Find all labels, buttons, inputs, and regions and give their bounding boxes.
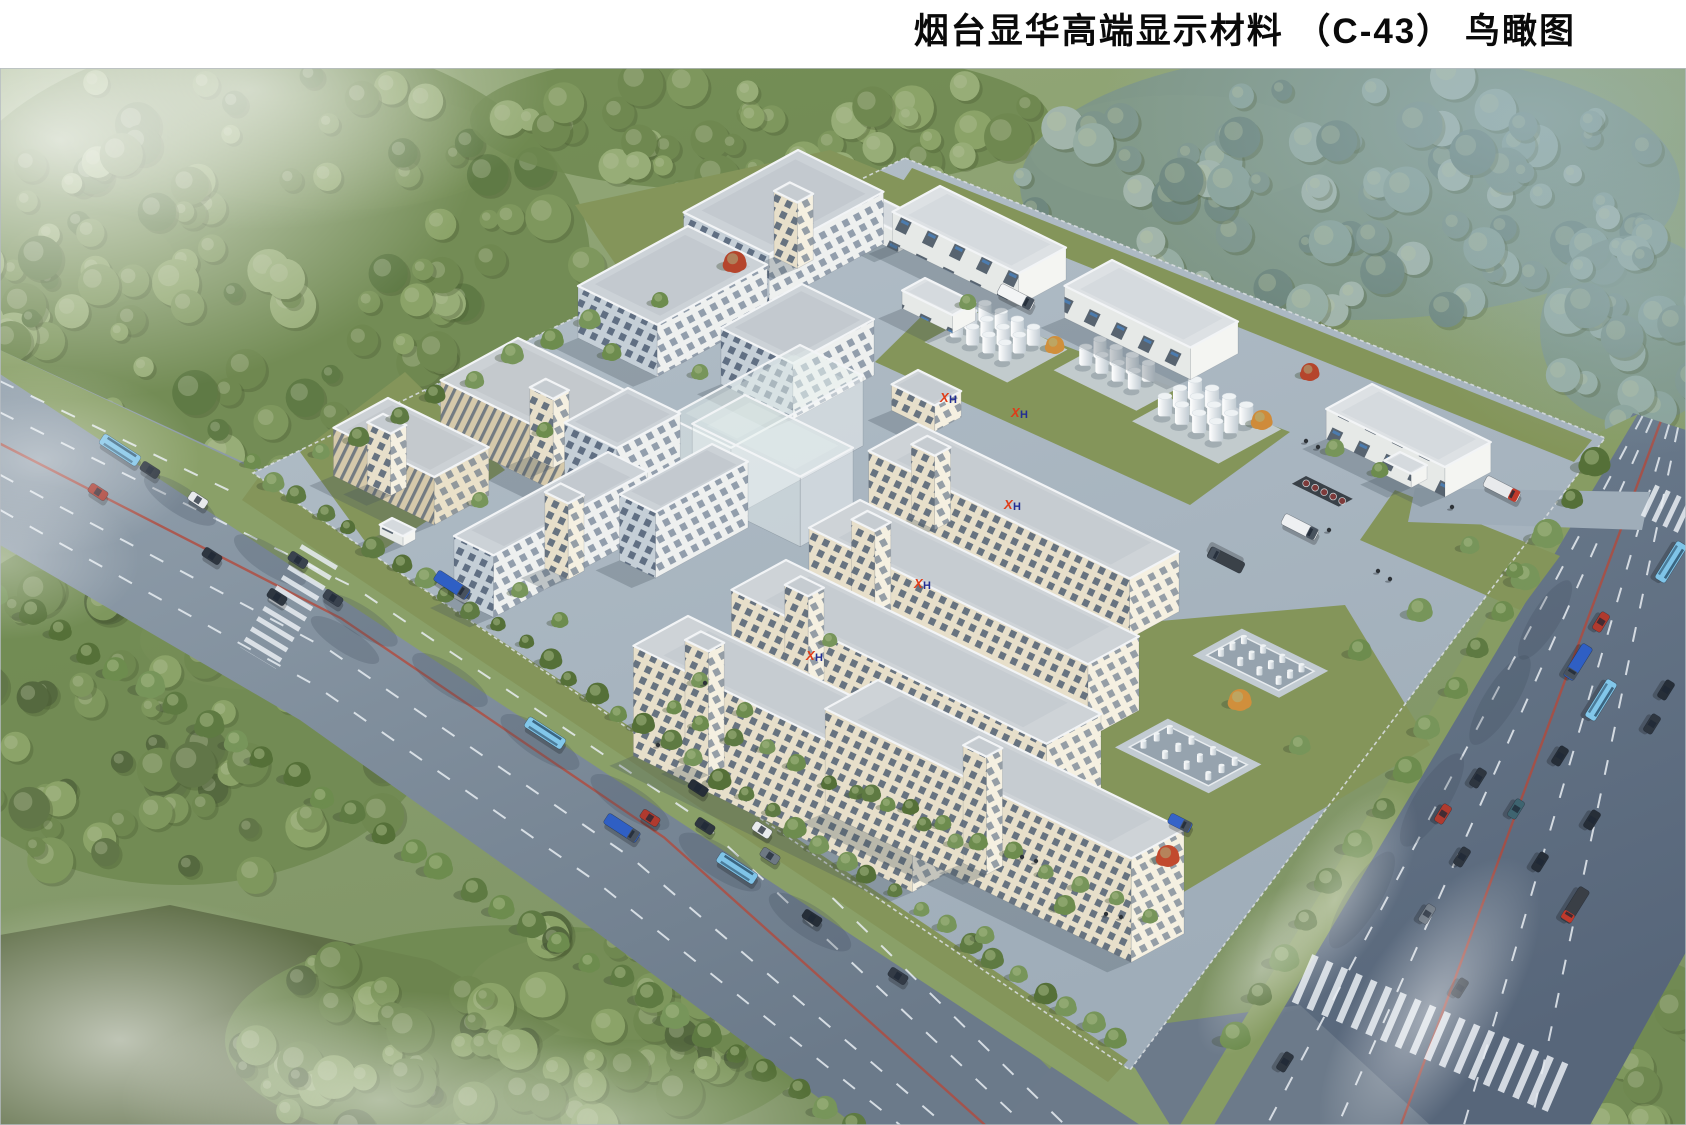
facade-sw-windows (367, 422, 390, 495)
pedestrian (1376, 569, 1380, 573)
aerator-tank-top (1167, 725, 1173, 728)
tree-highlight (254, 748, 265, 759)
pedestrian (703, 681, 707, 685)
tree-highlight (1659, 995, 1678, 1014)
aerator-tank-top (1276, 675, 1282, 678)
storage-tank-top (980, 316, 993, 322)
tree-highlight (366, 799, 386, 819)
storage-tank-top (997, 324, 1010, 330)
tree-highlight (551, 934, 561, 944)
tree-highlight (114, 753, 124, 763)
tree-highlight (21, 685, 35, 699)
aerial-rendering: XHXHXHXHXH (0, 68, 1686, 1125)
tree-highlight (1496, 603, 1506, 613)
tree-highlight (1112, 892, 1119, 899)
facade-se-windows (797, 194, 813, 269)
facade-se-windows (708, 643, 724, 776)
aerator-tank-top (1260, 644, 1266, 647)
tree-highlight (396, 556, 405, 565)
screenshot-page: 烟台显华高端显示材料 （C-43） 鸟瞰图 (0, 0, 1686, 1125)
logo-h: H (1020, 409, 1028, 421)
tree-highlight (1075, 878, 1083, 886)
tree-highlight (962, 296, 970, 304)
tree-highlight (672, 70, 691, 89)
tree-highlight (324, 367, 332, 375)
tree-highlight (522, 913, 536, 927)
tree-highlight (590, 685, 601, 696)
tree-highlight (640, 984, 653, 997)
tree-highlight (655, 158, 664, 167)
tree-highlight (288, 764, 301, 777)
facade-sw-windows (963, 745, 986, 874)
tree-highlight (1255, 412, 1265, 422)
tree-highlight (866, 136, 880, 150)
tree-highlight (654, 294, 662, 302)
tree-highlight (422, 336, 440, 354)
aerator-tank-top (1154, 732, 1160, 735)
storage-tank-top (1207, 401, 1221, 408)
aerator-tank-top (1175, 743, 1181, 746)
pedestrian (1304, 439, 1308, 443)
tree-highlight (614, 967, 625, 978)
skid-vessel (1303, 480, 1310, 487)
tree-highlight (143, 800, 158, 815)
pedestrian (1388, 577, 1392, 581)
tree-highlight (563, 673, 571, 681)
tree-highlight (1019, 97, 1030, 108)
tree-highlight (525, 977, 546, 998)
tree-highlight (852, 787, 859, 794)
skid-vessel (1312, 484, 1319, 491)
tree-highlight (343, 521, 350, 528)
pedestrian (1316, 445, 1320, 449)
aerator-tank-top (1287, 669, 1293, 672)
tree-highlight (28, 839, 37, 848)
tree-highlight (768, 804, 775, 811)
tree-highlight (141, 674, 155, 688)
tree-highlight (14, 792, 33, 811)
tree-highlight (812, 837, 822, 847)
tree-highlight (697, 1023, 711, 1037)
tree-highlight (167, 694, 179, 706)
tree-highlight (743, 108, 754, 119)
tree-highlight (1418, 717, 1430, 729)
aerator-tank-top (1241, 635, 1247, 638)
tree-highlight (583, 311, 593, 321)
tree-highlight (531, 200, 552, 221)
tree-highlight (582, 955, 592, 965)
tree-highlight (258, 409, 274, 425)
pedestrian (1020, 855, 1024, 859)
tree-highlight (112, 813, 124, 825)
storage-tank-top (1209, 418, 1223, 425)
aerator-tank-top (1237, 657, 1243, 660)
aerator-tank-top (1205, 771, 1211, 774)
aerator-tank-top (1256, 666, 1262, 669)
tree-highlight (787, 819, 798, 830)
storage-tank-top (1175, 401, 1189, 408)
tree-highlight (493, 897, 505, 909)
tree-highlight (210, 422, 220, 432)
tree-highlight (144, 701, 153, 710)
tree-highlight (664, 732, 674, 742)
tree-highlight (1038, 985, 1049, 996)
tree-highlight (595, 1013, 610, 1028)
logo-h: H (815, 652, 823, 664)
tree-highlight (1232, 691, 1243, 702)
pedestrian (1034, 859, 1038, 863)
tree-highlight (1565, 491, 1575, 501)
tree-highlight (548, 87, 566, 105)
aerator-tank-top (1189, 735, 1195, 738)
tree-highlight (959, 115, 977, 133)
tree-highlight (352, 429, 362, 439)
tree-highlight (300, 807, 312, 819)
tree-highlight (539, 424, 547, 432)
tree-highlight (468, 373, 477, 382)
tree-highlight (315, 445, 323, 453)
tree-highlight (396, 336, 405, 345)
tree-highlight (725, 136, 735, 146)
tree-highlight (351, 328, 365, 342)
tree-highlight (1016, 170, 1024, 178)
tree-highlight (739, 704, 747, 712)
pedestrian (1104, 912, 1108, 916)
tree-highlight (1509, 564, 1517, 572)
logo-h: H (1013, 501, 1021, 513)
tree-highlight (466, 880, 478, 892)
tree-highlight (1537, 522, 1552, 537)
tree-highlight (695, 717, 703, 725)
skid-vessel (1339, 498, 1346, 505)
facade-se-windows (935, 447, 951, 530)
tree-highlight (320, 506, 329, 515)
tree-highlight (493, 618, 500, 625)
tree-highlight (544, 650, 555, 661)
tree-highlight (324, 405, 336, 417)
tree-highlight (821, 134, 833, 146)
tree-highlight (836, 107, 853, 124)
tree-highlight (200, 713, 214, 727)
storage-tank-top (999, 339, 1012, 345)
tree-highlight (1078, 128, 1096, 146)
tree-highlight (817, 1098, 829, 1110)
tree-highlight (478, 990, 487, 999)
tree-highlight (954, 75, 967, 88)
tree-highlight (606, 101, 621, 116)
tree-highlight (612, 707, 620, 715)
tree-highlight (478, 248, 492, 262)
tree-highlight (883, 799, 890, 806)
facade-sw-windows (911, 444, 934, 529)
tree-highlight (857, 91, 875, 109)
aerator-tank-top (1230, 641, 1236, 644)
tree-highlight (916, 903, 923, 910)
tree-highlight (972, 835, 981, 844)
aerator-tank-top (1249, 650, 1255, 653)
tree-highlight (1352, 641, 1363, 652)
tree-highlight (176, 748, 197, 769)
tree-highlight (606, 345, 615, 354)
tree-highlight (860, 867, 869, 876)
storage-tank-top (1013, 332, 1026, 338)
aerator-tank-top (1210, 746, 1216, 749)
tree-highlight (1329, 441, 1338, 450)
skid-vessel (1321, 489, 1328, 496)
tree-highlight (500, 208, 513, 221)
tree-highlight (554, 614, 562, 622)
facade-sw-windows (545, 492, 568, 579)
tree-highlight (694, 366, 702, 374)
tree-highlight (824, 777, 831, 784)
tree-highlight (636, 715, 647, 726)
tree-highlight (923, 131, 933, 141)
skid-vessel (1330, 493, 1337, 500)
tree-highlight (1058, 897, 1068, 907)
tree-highlight (1041, 866, 1048, 873)
storage-tank-top (1192, 410, 1206, 417)
tree-highlight (950, 835, 958, 843)
tree-highlight (404, 287, 419, 302)
storage-tank-top (1158, 393, 1172, 400)
tree-highlight (4, 736, 17, 749)
storage-tank-top (1205, 385, 1219, 392)
tree-highlight (419, 570, 430, 581)
tree-highlight (1448, 679, 1459, 690)
tree-highlight (695, 125, 712, 142)
tree-highlight (626, 129, 642, 145)
storage-tank-top (1011, 316, 1024, 322)
tree-highlight (762, 741, 770, 749)
aerator-tank-top (1141, 739, 1147, 742)
aerator-tank-top (1299, 663, 1305, 666)
storage-tank-top (1222, 393, 1236, 400)
render-area: XHXHXHXHXH (0, 68, 1686, 1125)
tree-highlight (712, 771, 723, 782)
tree-highlight (953, 146, 965, 158)
tree-highlight (840, 854, 850, 864)
tree-highlight (366, 539, 377, 550)
tree-highlight (728, 730, 737, 739)
tree-highlight (727, 253, 738, 264)
tree-highlight (694, 674, 702, 682)
tree-highlight (291, 383, 308, 400)
tree-highlight (545, 330, 556, 341)
tree-highlight (1470, 640, 1480, 650)
tree-highlight (919, 818, 926, 825)
aerator-tank-top (1219, 764, 1225, 767)
tree-highlight (1047, 112, 1067, 132)
tree-highlight (1012, 967, 1021, 976)
tree-highlight (376, 825, 387, 836)
tree-highlight (181, 858, 191, 868)
tree-highlight (741, 788, 748, 795)
tree-highlight (1160, 847, 1171, 858)
tree-highlight (241, 861, 258, 878)
tree-highlight (195, 796, 206, 807)
tree-highlight (1008, 843, 1017, 852)
tree-highlight (1628, 1071, 1645, 1088)
tree-highlight (1145, 910, 1152, 917)
tree-highlight (406, 842, 418, 854)
aerator-tank-top (1279, 654, 1285, 657)
tree-highlight (1464, 538, 1473, 547)
tree-highlight (148, 737, 157, 746)
tree-highlight (394, 409, 403, 418)
facade-sw-windows (774, 191, 797, 269)
pedestrian (1119, 915, 1123, 919)
tree-highlight (1293, 737, 1303, 747)
pedestrian (656, 743, 660, 747)
facade-se-windows (391, 425, 407, 496)
tree-highlight (901, 109, 910, 118)
tree-highlight (941, 916, 950, 925)
storage-tank-top (982, 331, 995, 337)
tree-highlight (429, 855, 443, 869)
logo-h: H (923, 580, 931, 592)
tree-highlight (1059, 998, 1069, 1008)
tree-highlight (669, 702, 676, 709)
page-title: 烟台显华高端显示材料 （C-43） 鸟瞰图 (914, 0, 1576, 68)
tree-highlight (474, 494, 482, 502)
tree-highlight (739, 83, 749, 93)
tree-highlight (687, 750, 696, 759)
tree-highlight (825, 634, 832, 641)
tree-highlight (1108, 1030, 1119, 1041)
aerator-tank-top (1184, 760, 1190, 763)
tree-highlight (241, 821, 250, 830)
tree-highlight (228, 732, 239, 743)
tree-highlight (626, 155, 639, 168)
tree-highlight (142, 753, 162, 773)
tree-highlight (1398, 759, 1412, 773)
tree-highlight (790, 756, 799, 765)
tree-highlight (1087, 1014, 1098, 1025)
storage-tank-top (1224, 410, 1238, 417)
aerator-tank-top (1197, 753, 1203, 756)
tree-highlight (890, 885, 897, 892)
logo-h: H (949, 394, 957, 406)
tree-highlight (247, 455, 255, 463)
tree-highlight (905, 800, 913, 808)
pedestrian (1327, 528, 1331, 532)
aerator-tank-top (1162, 750, 1168, 753)
tree-highlight (865, 786, 874, 795)
storage-tank-top (1027, 324, 1040, 330)
tree-highlight (344, 803, 356, 815)
storage-tank-top (1239, 401, 1253, 408)
tree-highlight (1049, 338, 1058, 347)
tree-highlight (1374, 464, 1382, 472)
pedestrian (1450, 505, 1454, 509)
facade-se-windows (987, 748, 1003, 875)
tree-highlight (573, 251, 590, 268)
tree-highlight (107, 659, 119, 671)
tree-highlight (266, 474, 276, 484)
tree-highlight (990, 119, 1011, 140)
tree-highlight (81, 645, 92, 656)
aerator-tank-top (1218, 647, 1224, 650)
tree-highlight (314, 789, 325, 800)
storage-tank-top (1190, 393, 1204, 400)
tree-highlight (482, 212, 491, 221)
facade-se-windows (568, 495, 584, 580)
tree-highlight (428, 386, 438, 396)
title-bar: 烟台显华高端显示材料 （C-43） 鸟瞰图 (0, 0, 1686, 68)
tree-highlight (514, 584, 522, 592)
tree-highlight (464, 603, 473, 612)
tree-highlight (666, 1004, 680, 1018)
tree-highlight (95, 842, 108, 855)
tree-highlight (73, 676, 84, 687)
tree-highlight (505, 345, 516, 356)
tree-highlight (985, 950, 996, 961)
tree-highlight (937, 817, 945, 825)
tree-highlight (603, 153, 619, 169)
tree-highlight (1304, 365, 1313, 374)
aerator-tank-top (1232, 757, 1238, 760)
aerator-tank-top (1268, 660, 1274, 663)
tree-highlight (979, 928, 988, 937)
tree-highlight (522, 636, 529, 643)
tree-highlight (290, 487, 299, 496)
tree-highlight (1411, 600, 1423, 612)
